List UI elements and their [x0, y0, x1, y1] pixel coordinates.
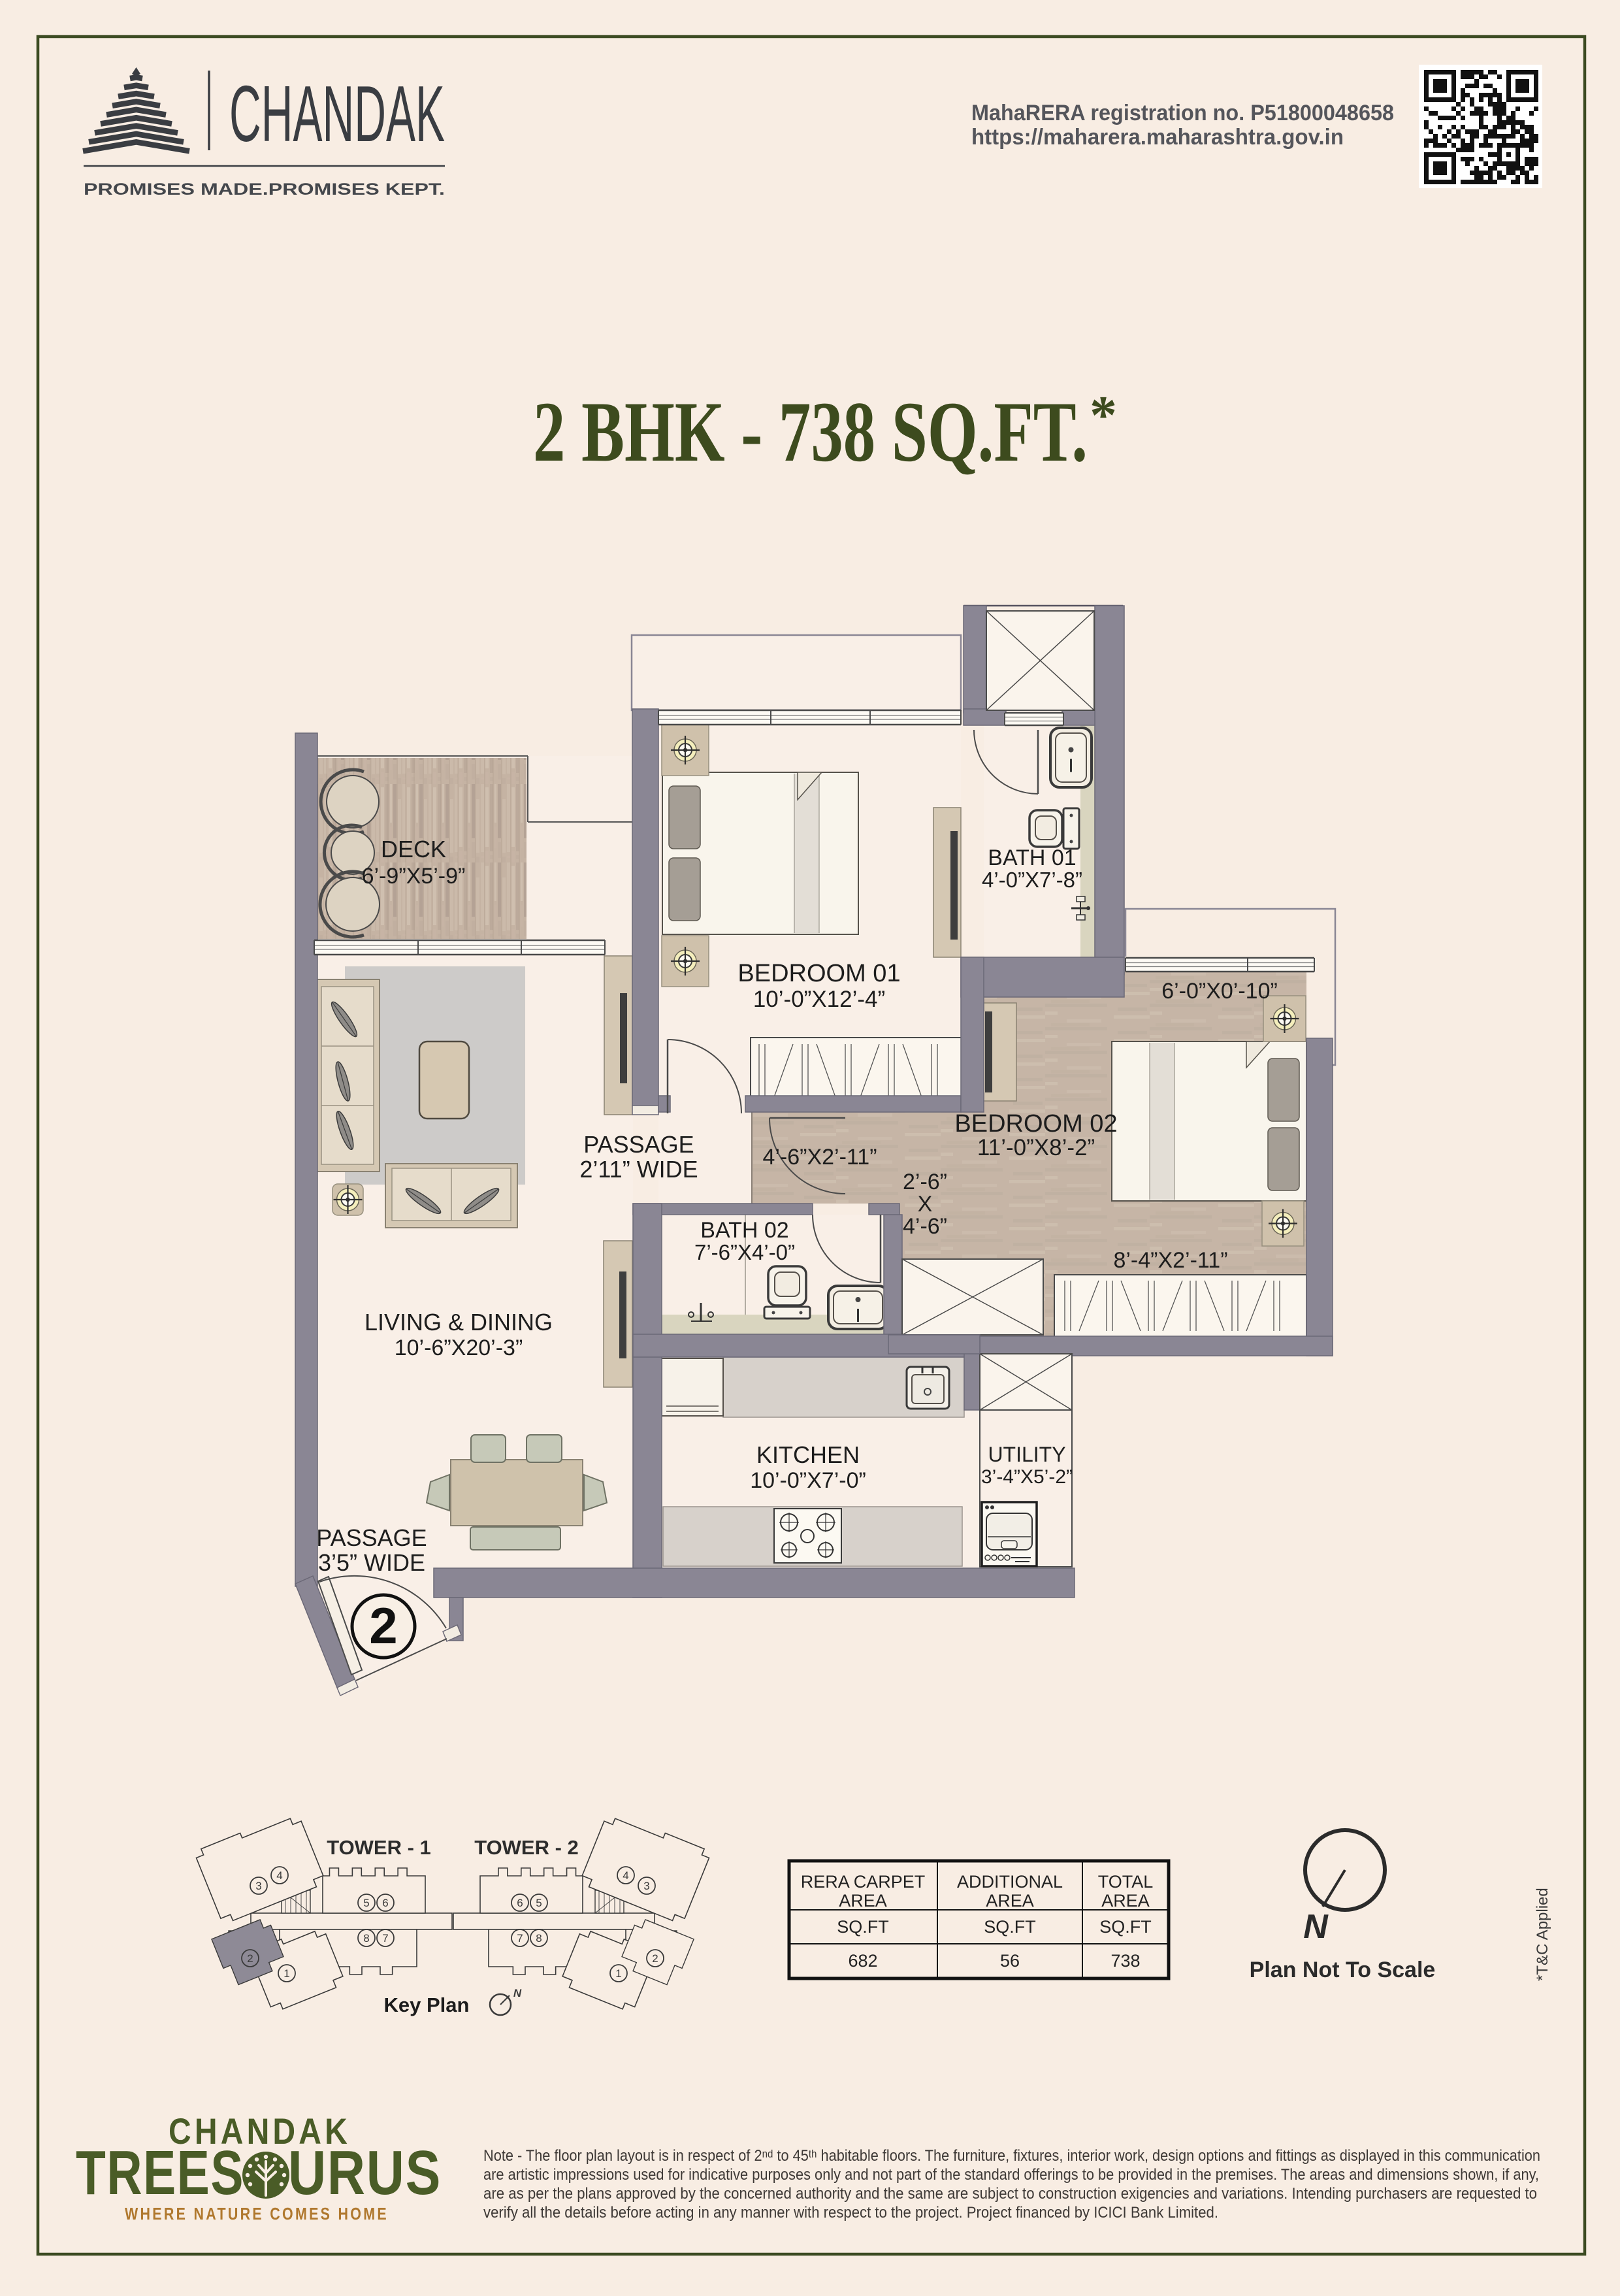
svg-text:738: 738 — [1110, 1951, 1140, 1971]
svg-text:4: 4 — [623, 1869, 628, 1882]
svg-text:https://maharera.maharashtra.g: https://maharera.maharashtra.gov.in — [971, 125, 1344, 150]
svg-text:MahaRERA registration no. P518: MahaRERA registration no. P51800048658 — [971, 101, 1394, 125]
svg-text:3: 3 — [643, 1880, 649, 1892]
svg-text:4’-6”: 4’-6” — [903, 1214, 947, 1239]
svg-text:2: 2 — [652, 1952, 658, 1965]
svg-text:*T&C Applied: *T&C Applied — [1534, 1888, 1551, 1981]
svg-text:10’-6”X20’-3”: 10’-6”X20’-3” — [395, 1336, 523, 1360]
svg-text:SQ.FT: SQ.FT — [1099, 1917, 1152, 1937]
svg-text:are artistic impressions used: are artistic impressions used for indica… — [483, 2166, 1539, 2184]
svg-text:SQ.FT: SQ.FT — [984, 1917, 1036, 1937]
svg-text:6: 6 — [517, 1897, 523, 1909]
svg-text:DECK: DECK — [381, 836, 446, 862]
svg-text:are as per the plans approved: are as per the plans approved by the con… — [483, 2185, 1537, 2203]
svg-text:TOWER - 2: TOWER - 2 — [474, 1836, 579, 1859]
svg-text:X: X — [918, 1192, 933, 1217]
svg-text:7: 7 — [382, 1932, 388, 1944]
svg-text:4: 4 — [276, 1869, 282, 1882]
svg-text:7’-6”X4’-0”: 7’-6”X4’-0” — [694, 1240, 795, 1264]
svg-text:3’-4”X5’-2”: 3’-4”X5’-2” — [981, 1466, 1073, 1488]
svg-text:10’-0”X12’-4”: 10’-0”X12’-4” — [753, 987, 885, 1012]
svg-text:BATH 02: BATH 02 — [700, 1218, 788, 1243]
svg-text:1: 1 — [283, 1967, 289, 1980]
svg-text:8: 8 — [363, 1932, 369, 1944]
svg-text:PROMISES MADE.PROMISES KEPT.: PROMISES MADE.PROMISES KEPT. — [84, 180, 445, 199]
svg-text:1: 1 — [615, 1967, 621, 1980]
svg-text:4’-6”X2’-11”: 4’-6”X2’-11” — [762, 1145, 877, 1170]
svg-text:56: 56 — [1000, 1951, 1020, 1971]
svg-text:URUS: URUS — [288, 2138, 442, 2208]
svg-text:SQ.FT: SQ.FT — [837, 1917, 889, 1937]
svg-text:8’-4”X2’-11”: 8’-4”X2’-11” — [1113, 1248, 1227, 1273]
svg-text:BEDROOM 01: BEDROOM 01 — [737, 960, 900, 987]
svg-text:6’-9”X5’-9”: 6’-9”X5’-9” — [362, 864, 466, 889]
svg-text:TREES: TREES — [76, 2138, 244, 2208]
svg-text:AREA: AREA — [839, 1891, 887, 1911]
svg-text:Plan Not To Scale: Plan Not To Scale — [1250, 1958, 1436, 1982]
svg-text:UTILITY: UTILITY — [988, 1443, 1065, 1466]
svg-text:PASSAGE: PASSAGE — [583, 1131, 694, 1158]
svg-text:5: 5 — [536, 1897, 542, 1909]
svg-text:LIVING & DINING: LIVING & DINING — [364, 1309, 553, 1336]
svg-text:verify all the details before: verify all the details before acting in … — [483, 2204, 1218, 2222]
svg-text:3: 3 — [255, 1880, 261, 1892]
svg-text:BATH 01: BATH 01 — [988, 845, 1076, 870]
svg-text:TOTAL: TOTAL — [1098, 1872, 1154, 1892]
svg-text:11’-0”X8’-2”: 11’-0”X8’-2” — [977, 1135, 1095, 1160]
svg-text:2’-6”: 2’-6” — [903, 1170, 947, 1194]
svg-text:4’-0”X7’-8”: 4’-0”X7’-8” — [982, 868, 1082, 892]
svg-text:N: N — [513, 1987, 522, 1999]
svg-text:Key Plan: Key Plan — [384, 1993, 470, 2016]
svg-text:6: 6 — [382, 1897, 388, 1909]
svg-text:10’-0”X7’-0”: 10’-0”X7’-0” — [750, 1468, 866, 1493]
svg-text:*: * — [1090, 385, 1117, 446]
svg-text:PASSAGE: PASSAGE — [316, 1524, 427, 1551]
svg-text:2: 2 — [247, 1952, 253, 1965]
svg-text:6’-0”X0’-10”: 6’-0”X0’-10” — [1161, 979, 1278, 1004]
svg-text:8: 8 — [536, 1932, 542, 1944]
svg-text:5: 5 — [363, 1897, 369, 1909]
svg-text:2’11” WIDE: 2’11” WIDE — [579, 1156, 698, 1183]
svg-text:AREA: AREA — [1101, 1891, 1150, 1911]
svg-text:682: 682 — [848, 1951, 877, 1971]
svg-text:RERA CARPET: RERA CARPET — [801, 1872, 926, 1892]
svg-text:TOWER - 1: TOWER - 1 — [327, 1836, 431, 1859]
svg-text:AREA: AREA — [986, 1891, 1034, 1911]
svg-text:WHERE NATURE COMES HOME: WHERE NATURE COMES HOME — [125, 2204, 389, 2223]
svg-text:3’5” WIDE: 3’5” WIDE — [318, 1549, 425, 1576]
svg-text:N: N — [1303, 1908, 1329, 1946]
svg-text:CHANDAK: CHANDAK — [229, 69, 445, 158]
svg-text:Note - The floor plan layout i: Note - The floor plan layout is in respe… — [483, 2147, 1540, 2165]
svg-text:2 BHK - 738 SQ.FT.: 2 BHK - 738 SQ.FT. — [533, 384, 1088, 480]
svg-text:2: 2 — [369, 1597, 397, 1654]
svg-text:KITCHEN: KITCHEN — [756, 1441, 860, 1468]
svg-text:BEDROOM 02: BEDROOM 02 — [954, 1110, 1117, 1138]
svg-text:7: 7 — [517, 1932, 523, 1944]
svg-text:ADDITIONAL: ADDITIONAL — [957, 1872, 1063, 1892]
